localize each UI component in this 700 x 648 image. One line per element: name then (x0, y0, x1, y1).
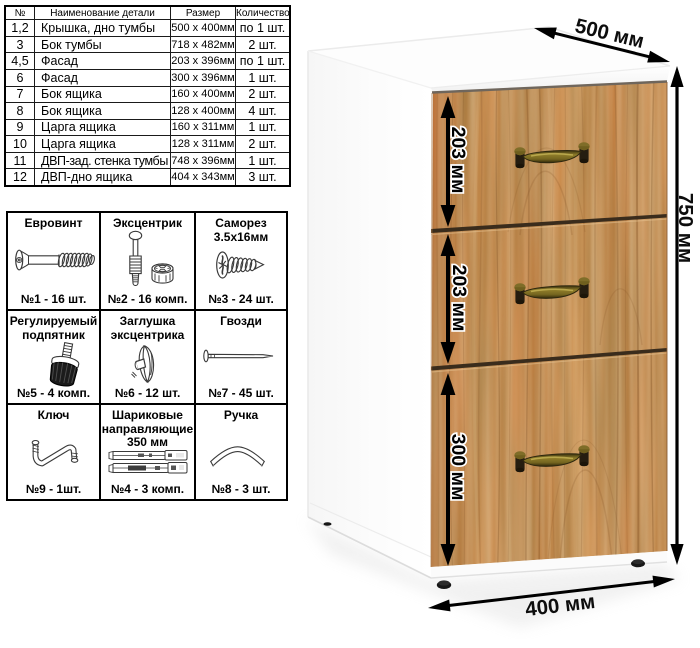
svg-text:203 мм: 203 мм (448, 265, 470, 332)
svg-text:750 мм: 750 мм (674, 193, 697, 263)
svg-text:300 мм: 300 мм (447, 434, 469, 501)
svg-text:203 мм: 203 мм (447, 127, 469, 194)
